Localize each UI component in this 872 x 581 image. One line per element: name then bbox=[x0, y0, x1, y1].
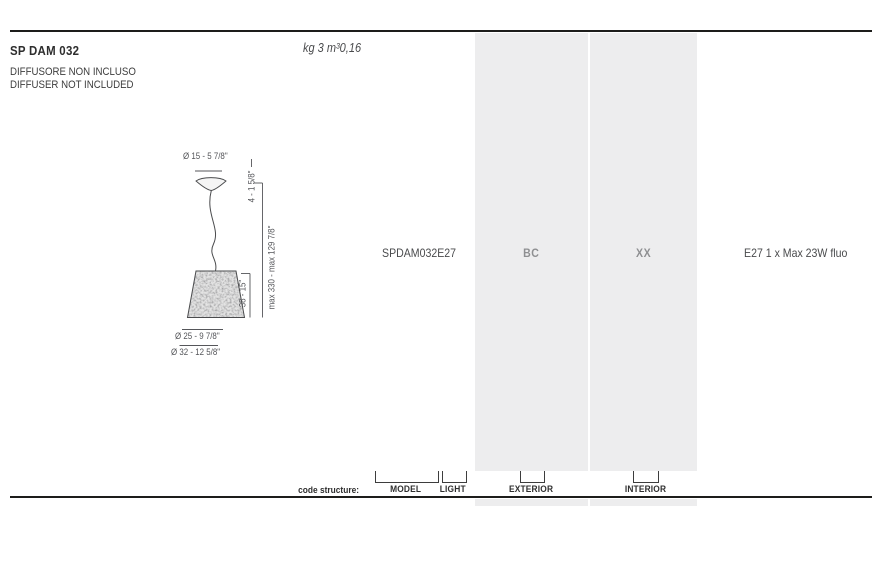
lamp-canopy bbox=[196, 178, 226, 191]
top-rule bbox=[10, 30, 872, 32]
exterior-bracket bbox=[520, 471, 545, 483]
dim-shade-height: 38 - 15" bbox=[238, 278, 249, 310]
spec-sheet-page: SP DAM 032 DIFFUSORE NON INCLUSO DIFFUSE… bbox=[0, 0, 872, 581]
exterior-column-stub bbox=[475, 499, 588, 506]
interior-column-stub bbox=[590, 499, 697, 506]
spec-interior-finish: XX bbox=[590, 246, 697, 261]
dim-shade-top-diameter: Ø 25 - 9 7/8" bbox=[175, 331, 226, 342]
code-structure-light-label: LIGHT bbox=[428, 484, 478, 495]
code-structure-interior-label: INTERIOR bbox=[610, 484, 680, 495]
lamp-shade-texture bbox=[188, 271, 245, 318]
note-english: DIFFUSER NOT INCLUDED bbox=[10, 79, 150, 91]
code-structure-exterior-label: EXTERIOR bbox=[496, 484, 566, 495]
interior-bracket bbox=[633, 471, 659, 483]
light-bracket bbox=[442, 471, 467, 483]
model-bracket bbox=[375, 471, 439, 483]
bottom-rule bbox=[10, 496, 872, 498]
spec-article-code: SPDAM032E27 bbox=[355, 246, 483, 261]
note-italian: DIFFUSORE NON INCLUSO bbox=[10, 66, 153, 78]
product-code-title: SP DAM 032 bbox=[10, 43, 89, 58]
dim-canopy-height: 4 - 1 5/8" bbox=[247, 166, 258, 206]
dim-canopy-diameter: Ø 15 - 5 7/8" bbox=[183, 151, 234, 162]
lamp-cable bbox=[210, 191, 216, 272]
dim-shade-bottom-diameter: Ø 32 - 12 5/8" bbox=[171, 347, 227, 358]
dim-max-drop: max 330 - max 129 7/8" bbox=[267, 220, 278, 315]
product-code-text: SP DAM 032 bbox=[10, 43, 79, 58]
code-structure-caption: code structure: bbox=[280, 485, 363, 496]
spec-exterior-finish: BC bbox=[475, 246, 588, 261]
weight-volume-label: kg 3 m³0,16 bbox=[303, 41, 369, 55]
spec-lamping: E27 1 x Max 23W fluo bbox=[706, 246, 872, 261]
